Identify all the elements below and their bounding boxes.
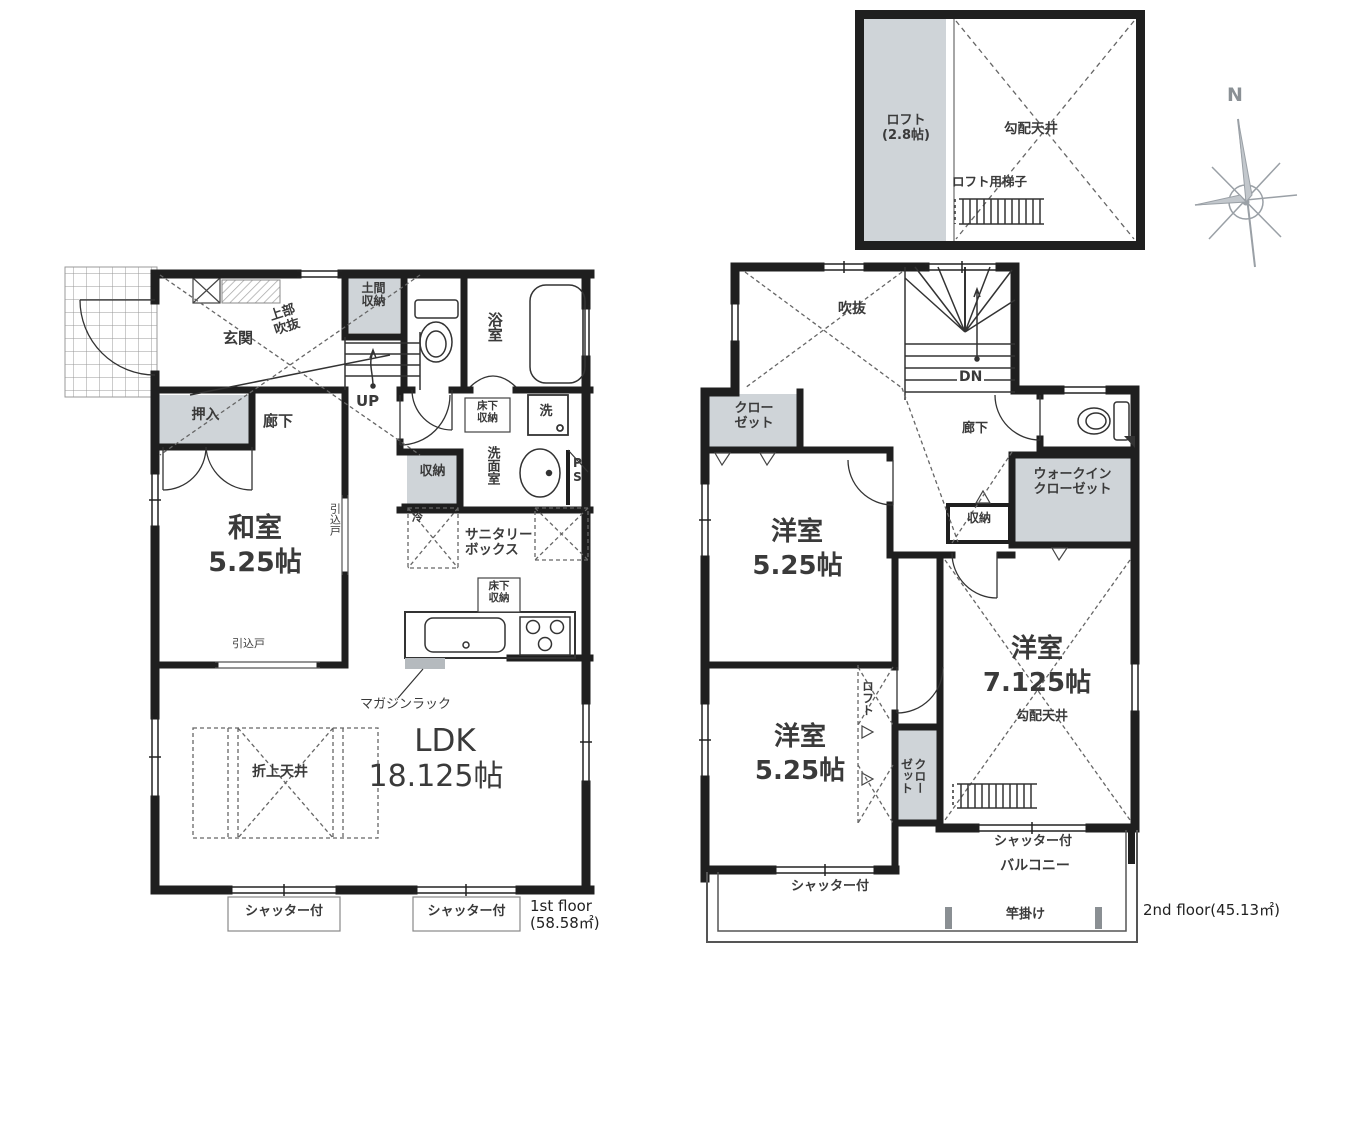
- label-hallway-2f: 廊下: [962, 422, 988, 437]
- label-void-2f: 吹抜: [822, 302, 882, 318]
- outer-walls: [155, 274, 590, 890]
- label-washitsu-size: 5.25帖: [180, 548, 330, 578]
- balcony-wall-stub: [1128, 828, 1135, 864]
- toilet-icon-2f: [1078, 402, 1135, 448]
- floorplan-canvas: ロフト (2.8帖) 勾配天井 ロフト用梯子 N: [0, 0, 1371, 1125]
- label-bedroom1-name: 洋室: [737, 518, 857, 547]
- pole-post: [945, 907, 952, 929]
- label-oshiire: 押入: [163, 408, 248, 424]
- label-ldk-name: LDK: [390, 724, 500, 759]
- label-walkin-closet: ウォークインクローゼット: [1015, 468, 1130, 497]
- label-sanitary-box: サニタリーボックス: [465, 528, 533, 558]
- label-ps: PS: [570, 456, 583, 484]
- pole-post: [1095, 907, 1102, 929]
- label-fridge: 冷: [412, 512, 423, 524]
- label-sliding-door-bottom: 引込戸: [232, 638, 265, 650]
- label-entrance: 玄関: [223, 330, 253, 347]
- label-underfloor-storage-2: 床下収納: [478, 581, 520, 605]
- kitchen-counter: [405, 612, 575, 658]
- loft-room-label: ロフト (2.8帖): [866, 114, 946, 143]
- magazine-rack-icon: [405, 658, 445, 669]
- label-stairs-up: UP: [356, 393, 379, 410]
- label-washer: 洗: [528, 405, 564, 420]
- label-pole-hanger: 竿掛け: [998, 908, 1053, 923]
- label-underfloor-storage-1: 床下収納: [465, 401, 510, 425]
- shoe-cabinet-icon: [193, 278, 220, 303]
- label-washroom: 洗面室: [484, 446, 499, 485]
- label-bathroom: 浴室: [486, 312, 503, 342]
- entry-counter: [222, 280, 280, 303]
- label-bedroom2-name: 洋室: [977, 635, 1097, 664]
- loft-ceiling-label: 勾配天井: [1004, 122, 1058, 137]
- label-sliding-door-right: 引込戸: [328, 503, 340, 536]
- label-loft-2f: ロフト: [860, 680, 873, 716]
- bathtub-icon: [530, 285, 585, 383]
- label-bedroom3-size: 5.25帖: [732, 757, 868, 786]
- ladder-icon-2f: [953, 784, 1037, 808]
- magazine-rack-pointer: [398, 669, 423, 698]
- loft-ladder-label: ロフト用梯子: [952, 175, 1027, 189]
- compass: N: [1185, 85, 1310, 280]
- first-floor-plan: 玄関 上部吹抜 土間収納 浴室 UP 押入 廊下 床下収納 洗 洗面室 PS 収…: [60, 260, 640, 950]
- label-sloped-ceiling-2f: 勾配天井: [1002, 710, 1082, 725]
- compass-icon: [1185, 85, 1310, 280]
- label-closet-topleft: クローゼット: [710, 402, 798, 431]
- porch-grid: [65, 267, 157, 397]
- label-storage-1f: 収納: [407, 465, 458, 480]
- second-floor-caption: 2nd floor(45.13㎡): [1143, 902, 1280, 919]
- ladder-icon: [955, 199, 1044, 224]
- label-washitsu-name: 和室: [195, 514, 315, 544]
- label-magazine-rack: マガジンラック: [360, 698, 451, 713]
- second-floor-drawing: [690, 260, 1330, 960]
- label-bedroom1-size: 5.25帖: [730, 552, 865, 581]
- label-shutter-left-2f: シャッター付: [775, 880, 885, 895]
- label-shutter-left-1f: シャッター付: [228, 905, 340, 920]
- label-closet-bedroom2: クローゼット: [899, 735, 926, 817]
- label-shutter-right-2f: シャッター付: [973, 835, 1093, 850]
- label-shutter-right-1f: シャッター付: [413, 905, 520, 920]
- label-stairs-down: DN: [957, 370, 984, 386]
- label-ldk-size: 18.125帖: [356, 760, 516, 794]
- label-bedroom2-size: 7.125帖: [967, 669, 1107, 698]
- first-floor-drawing: [60, 260, 640, 950]
- kitchen-sink-icon: [425, 618, 505, 652]
- label-storage-2f: 収納: [948, 512, 1010, 525]
- label-doma-storage: 土間収納: [347, 282, 400, 309]
- label-balcony: バルコニー: [980, 859, 1090, 875]
- label-bedroom3-name: 洋室: [740, 723, 860, 752]
- label-coffered-ceiling: 折上天井: [252, 765, 308, 781]
- label-hallway: 廊下: [263, 413, 293, 430]
- second-floor-plan: 吹抜 DN クローゼット 廊下 ウォークインクローゼット 収納 洋室 5.25帖…: [690, 260, 1330, 960]
- washbasin-icon: [520, 449, 560, 497]
- loft-plan: ロフト (2.8帖) 勾配天井 ロフト用梯子: [855, 10, 1145, 250]
- compass-north-label: N: [1227, 85, 1243, 106]
- toilet-icon: [415, 300, 458, 362]
- first-floor-caption: 1st floor(58.58㎡): [530, 898, 600, 932]
